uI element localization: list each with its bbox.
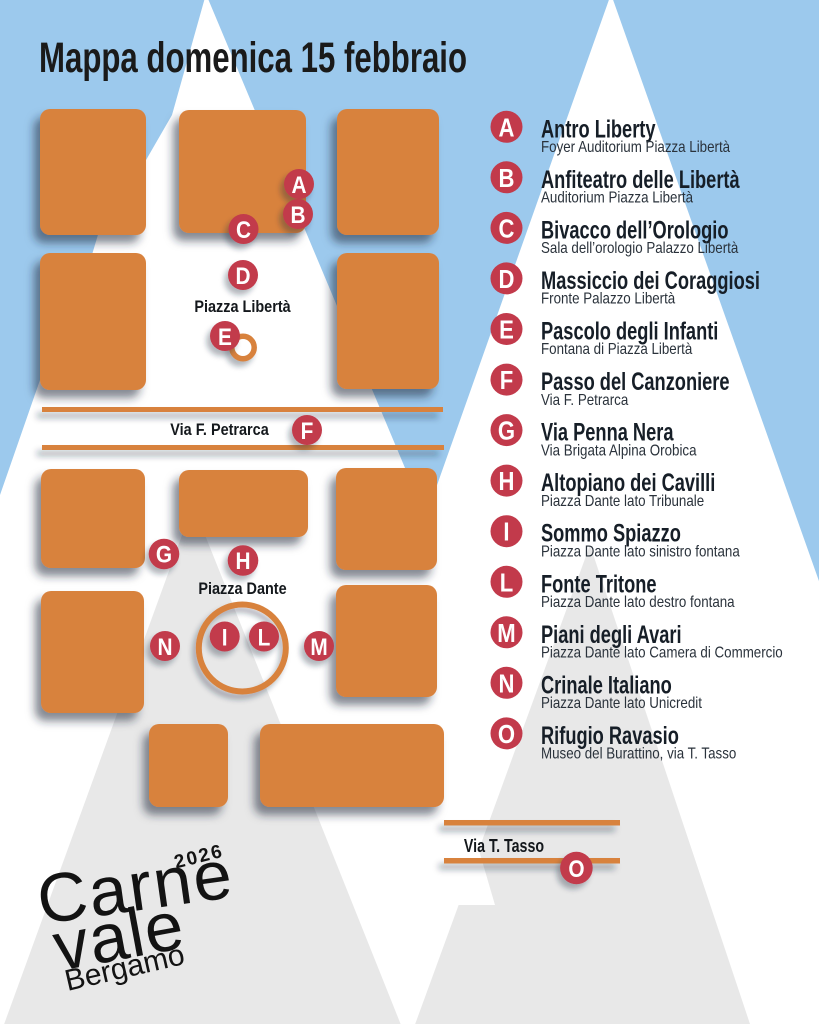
- svg-text:M: M: [497, 619, 515, 648]
- svg-text:Piazza Libertà: Piazza Libertà: [194, 298, 291, 316]
- svg-text:Mappa domenica 15 febbraio: Mappa domenica 15 febbraio: [39, 33, 467, 81]
- svg-text:H: H: [499, 467, 515, 496]
- svg-text:E: E: [499, 316, 514, 345]
- svg-text:A: A: [291, 170, 306, 198]
- svg-text:Piazza Dante lato destro fonta: Piazza Dante lato destro fontana: [541, 594, 735, 611]
- svg-text:Museo del Burattino, via T. Ta: Museo del Burattino, via T. Tasso: [541, 746, 736, 763]
- svg-text:Auditorium Piazza Libertà: Auditorium Piazza Libertà: [541, 189, 694, 206]
- svg-text:B: B: [499, 164, 515, 193]
- svg-text:H: H: [235, 546, 250, 574]
- svg-text:Fontana di Piazza Libertà: Fontana di Piazza Libertà: [541, 341, 693, 358]
- svg-text:D: D: [499, 265, 515, 294]
- svg-text:Via T. Tasso: Via T. Tasso: [464, 836, 544, 856]
- svg-text:I: I: [222, 623, 228, 651]
- svg-text:Piazza Dante lato Tribunale: Piazza Dante lato Tribunale: [541, 493, 704, 510]
- svg-text:N: N: [499, 670, 515, 699]
- svg-text:C: C: [236, 215, 251, 243]
- svg-text:L: L: [500, 569, 513, 598]
- svg-text:N: N: [157, 632, 172, 660]
- svg-text:D: D: [235, 261, 250, 289]
- svg-text:I: I: [503, 518, 509, 547]
- svg-text:Fronte Palazzo Libertà: Fronte Palazzo Libertà: [541, 291, 676, 308]
- svg-text:G: G: [156, 540, 172, 568]
- svg-text:Piazza Dante lato Unicredit: Piazza Dante lato Unicredit: [541, 695, 702, 712]
- svg-text:Via F. Petrarca: Via F. Petrarca: [541, 392, 629, 409]
- svg-text:L: L: [258, 623, 271, 651]
- svg-text:F: F: [301, 416, 314, 444]
- svg-text:Via F. Petrarca: Via F. Petrarca: [170, 421, 269, 439]
- svg-text:Piazza Dante lato Camera di Co: Piazza Dante lato Camera di Commercio: [541, 644, 783, 661]
- svg-text:B: B: [290, 200, 305, 228]
- svg-text:O: O: [568, 855, 584, 883]
- svg-text:G: G: [498, 417, 515, 446]
- svg-text:O: O: [498, 720, 515, 749]
- svg-text:E: E: [218, 322, 232, 350]
- svg-text:F: F: [500, 366, 513, 395]
- svg-text:M: M: [310, 632, 327, 660]
- svg-text:C: C: [499, 215, 515, 244]
- svg-text:Piazza Dante lato sinistro fon: Piazza Dante lato sinistro fontana: [541, 543, 740, 560]
- svg-text:A: A: [499, 114, 515, 143]
- svg-text:Piazza Dante: Piazza Dante: [198, 580, 286, 598]
- svg-text:Sala dell’orologio Palazzo Lib: Sala dell’orologio Palazzo Libertà: [541, 240, 739, 257]
- svg-text:Via Brigata Alpina Orobica: Via Brigata Alpina Orobica: [541, 442, 697, 459]
- svg-text:Foyer Auditorium Piazza Libert: Foyer Auditorium Piazza Libertà: [541, 139, 731, 156]
